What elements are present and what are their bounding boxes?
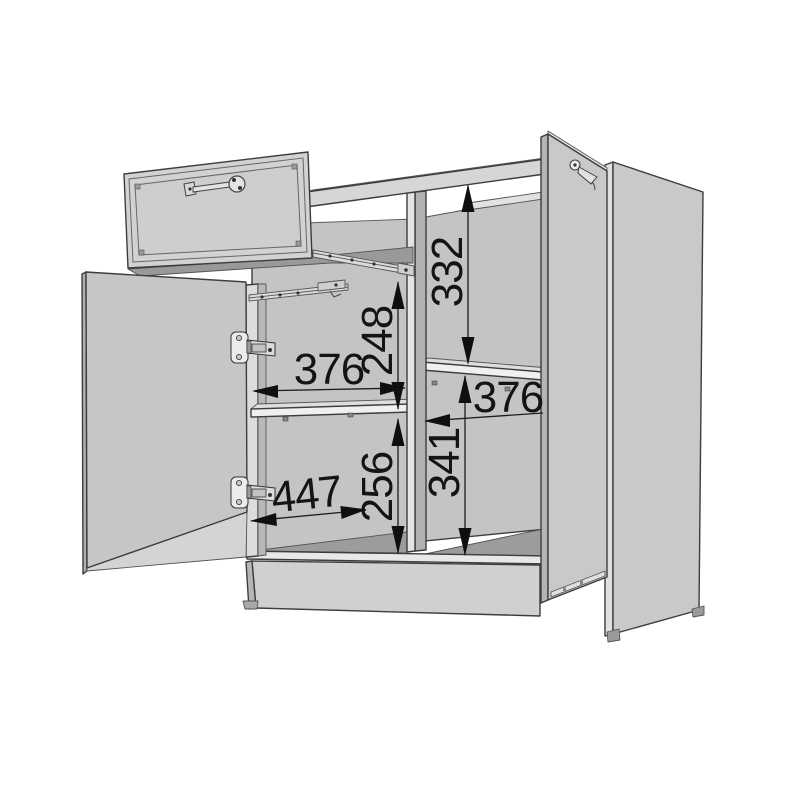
corner-fitting	[135, 184, 140, 189]
corner-fitting	[292, 164, 297, 169]
left-door	[82, 272, 275, 574]
dim-label-341: 341	[420, 428, 469, 498]
plinth-front	[252, 561, 540, 616]
dim-label-376-right: 376	[473, 373, 543, 422]
shelf-peg	[348, 413, 353, 417]
shelf-peg	[283, 417, 288, 421]
dim-label-376-left: 376	[294, 345, 364, 394]
cabinet-assembly-diagram: 332 248 376 376 256	[0, 0, 800, 800]
right-side-panel	[613, 162, 703, 634]
front-left-foot	[243, 601, 258, 609]
drawer-front	[124, 152, 312, 268]
left-side-inner-sliver	[258, 284, 266, 556]
right-door-edge	[541, 134, 548, 603]
left-side-front-edge	[246, 284, 258, 557]
right-door	[541, 131, 607, 603]
corner-fitting	[296, 241, 301, 246]
corner-fitting	[139, 250, 144, 255]
dim-label-447: 447	[269, 467, 344, 523]
right-door-inner-face	[548, 134, 607, 600]
dim-label-332: 332	[423, 237, 472, 307]
assembly-diagram-page: 332 248 376 376 256	[0, 0, 800, 800]
shelf-peg	[432, 381, 437, 385]
